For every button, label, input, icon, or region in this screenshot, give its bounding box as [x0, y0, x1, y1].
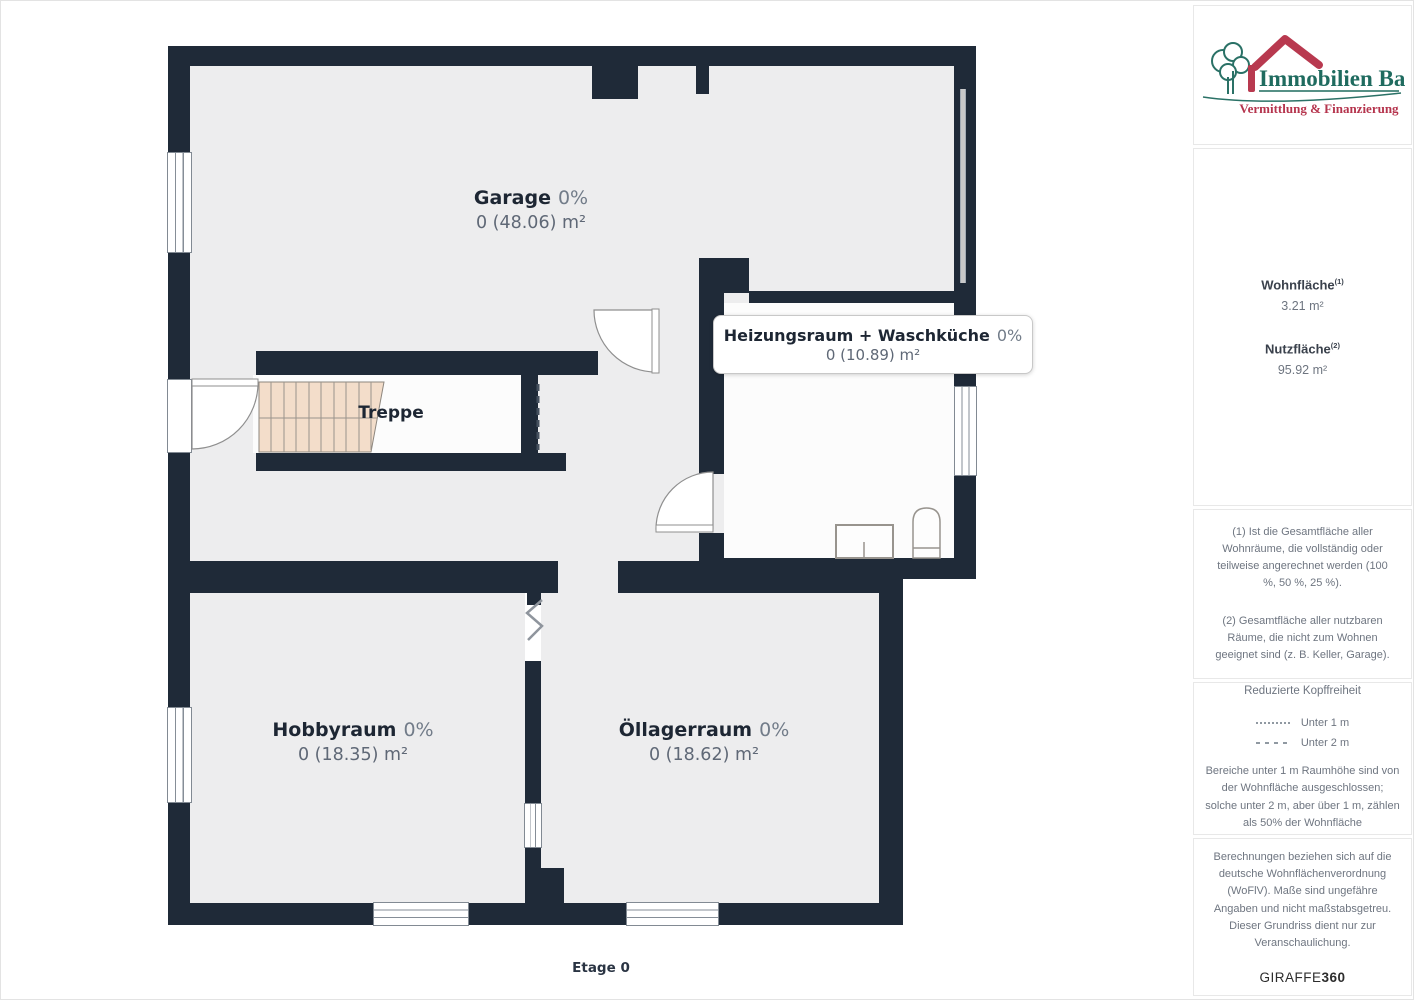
window: [167, 707, 192, 803]
room-label-oellagerraum: Öllagerraum0% 0 (18.62) m²: [554, 719, 854, 767]
wall-segment: [168, 46, 976, 66]
floorplan-canvas[interactable]: Garage0% 0 (48.06) m² Heizungsraum + Was…: [1, 1, 1191, 1000]
room-name: Heizungsraum + Waschküche: [724, 326, 990, 345]
room-name: Hobbyraum: [272, 719, 396, 741]
wohnflaeche-value: 3.21 m²: [1281, 299, 1323, 313]
room-area: 0 (18.62) m²: [554, 745, 854, 767]
legend-text: Bereiche unter 1 m Raumhöhe sind von der…: [1205, 763, 1401, 831]
wall-segment: [696, 66, 709, 94]
window: [524, 803, 542, 848]
room-name: Garage: [474, 187, 551, 209]
wall-segment: [618, 561, 903, 593]
footnote-ref: (2): [1331, 341, 1340, 350]
room-percent: 0%: [997, 326, 1022, 345]
wall-break-zigzag-icon: [527, 600, 542, 640]
legend-title: Reduzierte Kopffreiheit: [1244, 685, 1361, 697]
wall-segment: [749, 291, 954, 303]
wall-segment: [541, 868, 564, 903]
room-name: Treppe: [358, 403, 424, 423]
wohnflaeche-heading: Wohnfläche(1): [1261, 277, 1344, 292]
room-area: 0 (48.06) m²: [381, 213, 681, 235]
dashed-line-icon: [1256, 742, 1292, 744]
room-label-garage: Garage0% 0 (48.06) m²: [381, 187, 681, 235]
logo-card: Immobilien Bart Vermittlung & Finanzieru…: [1193, 5, 1412, 145]
room-percent: 0%: [403, 719, 433, 741]
nutzflaeche-heading: Nutzfläche(2): [1265, 341, 1340, 356]
wall-segment: [168, 903, 903, 925]
wall-segment: [525, 661, 541, 803]
wall-segment: [168, 561, 558, 593]
room-label-treppe: Treppe: [341, 403, 441, 424]
footnotes-card: (1) Ist die Gesamtfläche aller Wohnräume…: [1193, 509, 1412, 679]
window: [954, 386, 977, 476]
wall-segment: [592, 66, 638, 99]
room-area: 0 (10.89) m²: [826, 346, 920, 364]
wall-segment: [525, 848, 541, 903]
door-bar-icon: [1248, 65, 1255, 92]
tree-icon: [1212, 43, 1249, 80]
room-percent: 0%: [558, 187, 588, 209]
wall-segment: [521, 375, 538, 453]
legend-label: Unter 1 m: [1301, 717, 1349, 729]
nutzflaeche-value: 95.92 m²: [1278, 363, 1327, 377]
window: [167, 152, 192, 253]
headroom-legend-card: Reduzierte Kopffreiheit Unter 1 m Unter …: [1193, 682, 1412, 835]
floor-opening: [558, 561, 618, 593]
footnote-2: (2) Gesamtfläche aller nutzbaren Räume, …: [1212, 613, 1394, 664]
immobilien-bart-logo: Immobilien Bart Vermittlung & Finanzieru…: [1201, 23, 1405, 127]
logo-title: Immobilien Bart: [1259, 66, 1405, 91]
dotted-line-icon: [1256, 722, 1292, 724]
door-frame: [167, 379, 192, 453]
legend-row-under-2m: Unter 2 m: [1256, 737, 1349, 749]
window: [373, 902, 469, 926]
areas-card: Wohnfläche(1) 3.21 m² Nutzfläche(2) 95.9…: [1193, 148, 1412, 506]
legend-row-under-1m: Unter 1 m: [1256, 717, 1349, 729]
floorplan-page: Garage0% 0 (48.06) m² Heizungsraum + Was…: [0, 0, 1414, 1000]
room-label-hobbyraum: Hobbyraum0% 0 (18.35) m²: [203, 719, 503, 767]
wall-segment: [879, 593, 903, 925]
room-name: Öllagerraum: [619, 719, 752, 741]
legend-label: Unter 2 m: [1301, 737, 1349, 749]
logo-subtitle: Vermittlung & Finanzierung: [1239, 101, 1399, 116]
wall-segment: [699, 258, 749, 293]
room-label-heizungsraum[interactable]: Heizungsraum + Waschküche0% 0 (10.89) m²: [713, 315, 1033, 374]
footnote-1: (1) Ist die Gesamtfläche aller Wohnräume…: [1212, 524, 1394, 592]
disclaimer-text: Berechnungen beziehen sich auf die deuts…: [1205, 849, 1401, 951]
wall-segment: [256, 453, 566, 471]
room-percent: 0%: [759, 719, 789, 741]
floor-level-label: Etage 0: [501, 960, 701, 976]
roof-icon: [1255, 39, 1319, 67]
wall-segment: [527, 593, 541, 605]
window: [626, 902, 719, 926]
garage-door-line: [960, 89, 966, 283]
wall-segment: [256, 351, 598, 375]
footnote-ref: (1): [1335, 277, 1344, 286]
giraffe360-logo: GIRAFFE360: [1259, 970, 1345, 985]
disclaimer-card: Berechnungen beziehen sich auf die deuts…: [1193, 838, 1412, 996]
room-area: 0 (18.35) m²: [203, 745, 503, 767]
